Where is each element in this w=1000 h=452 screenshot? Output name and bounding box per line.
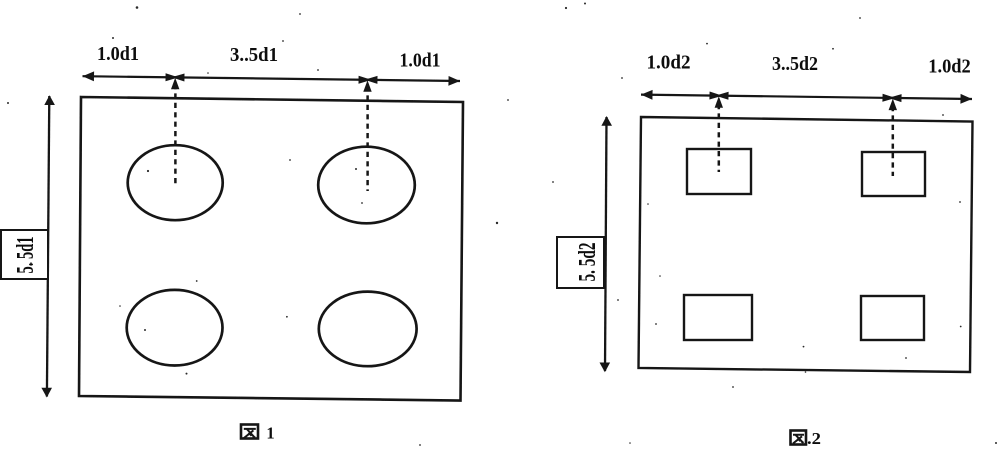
svg-text:5. 5d1: 5. 5d1	[13, 237, 39, 274]
svg-text:1.0d2: 1.0d2	[928, 56, 971, 78]
svg-text:3..5d1: 3..5d1	[230, 44, 278, 66]
svg-text:1.0d1: 1.0d1	[97, 43, 139, 65]
svg-text:3..5d2: 3..5d2	[772, 53, 818, 75]
svg-text:.2: .2	[807, 429, 821, 448]
svg-text:1: 1	[266, 424, 274, 443]
svg-text:5. 5d2: 5. 5d2	[575, 243, 601, 282]
svg-text:1.0d2: 1.0d2	[647, 52, 691, 74]
svg-text:1.0d1: 1.0d1	[400, 50, 441, 72]
